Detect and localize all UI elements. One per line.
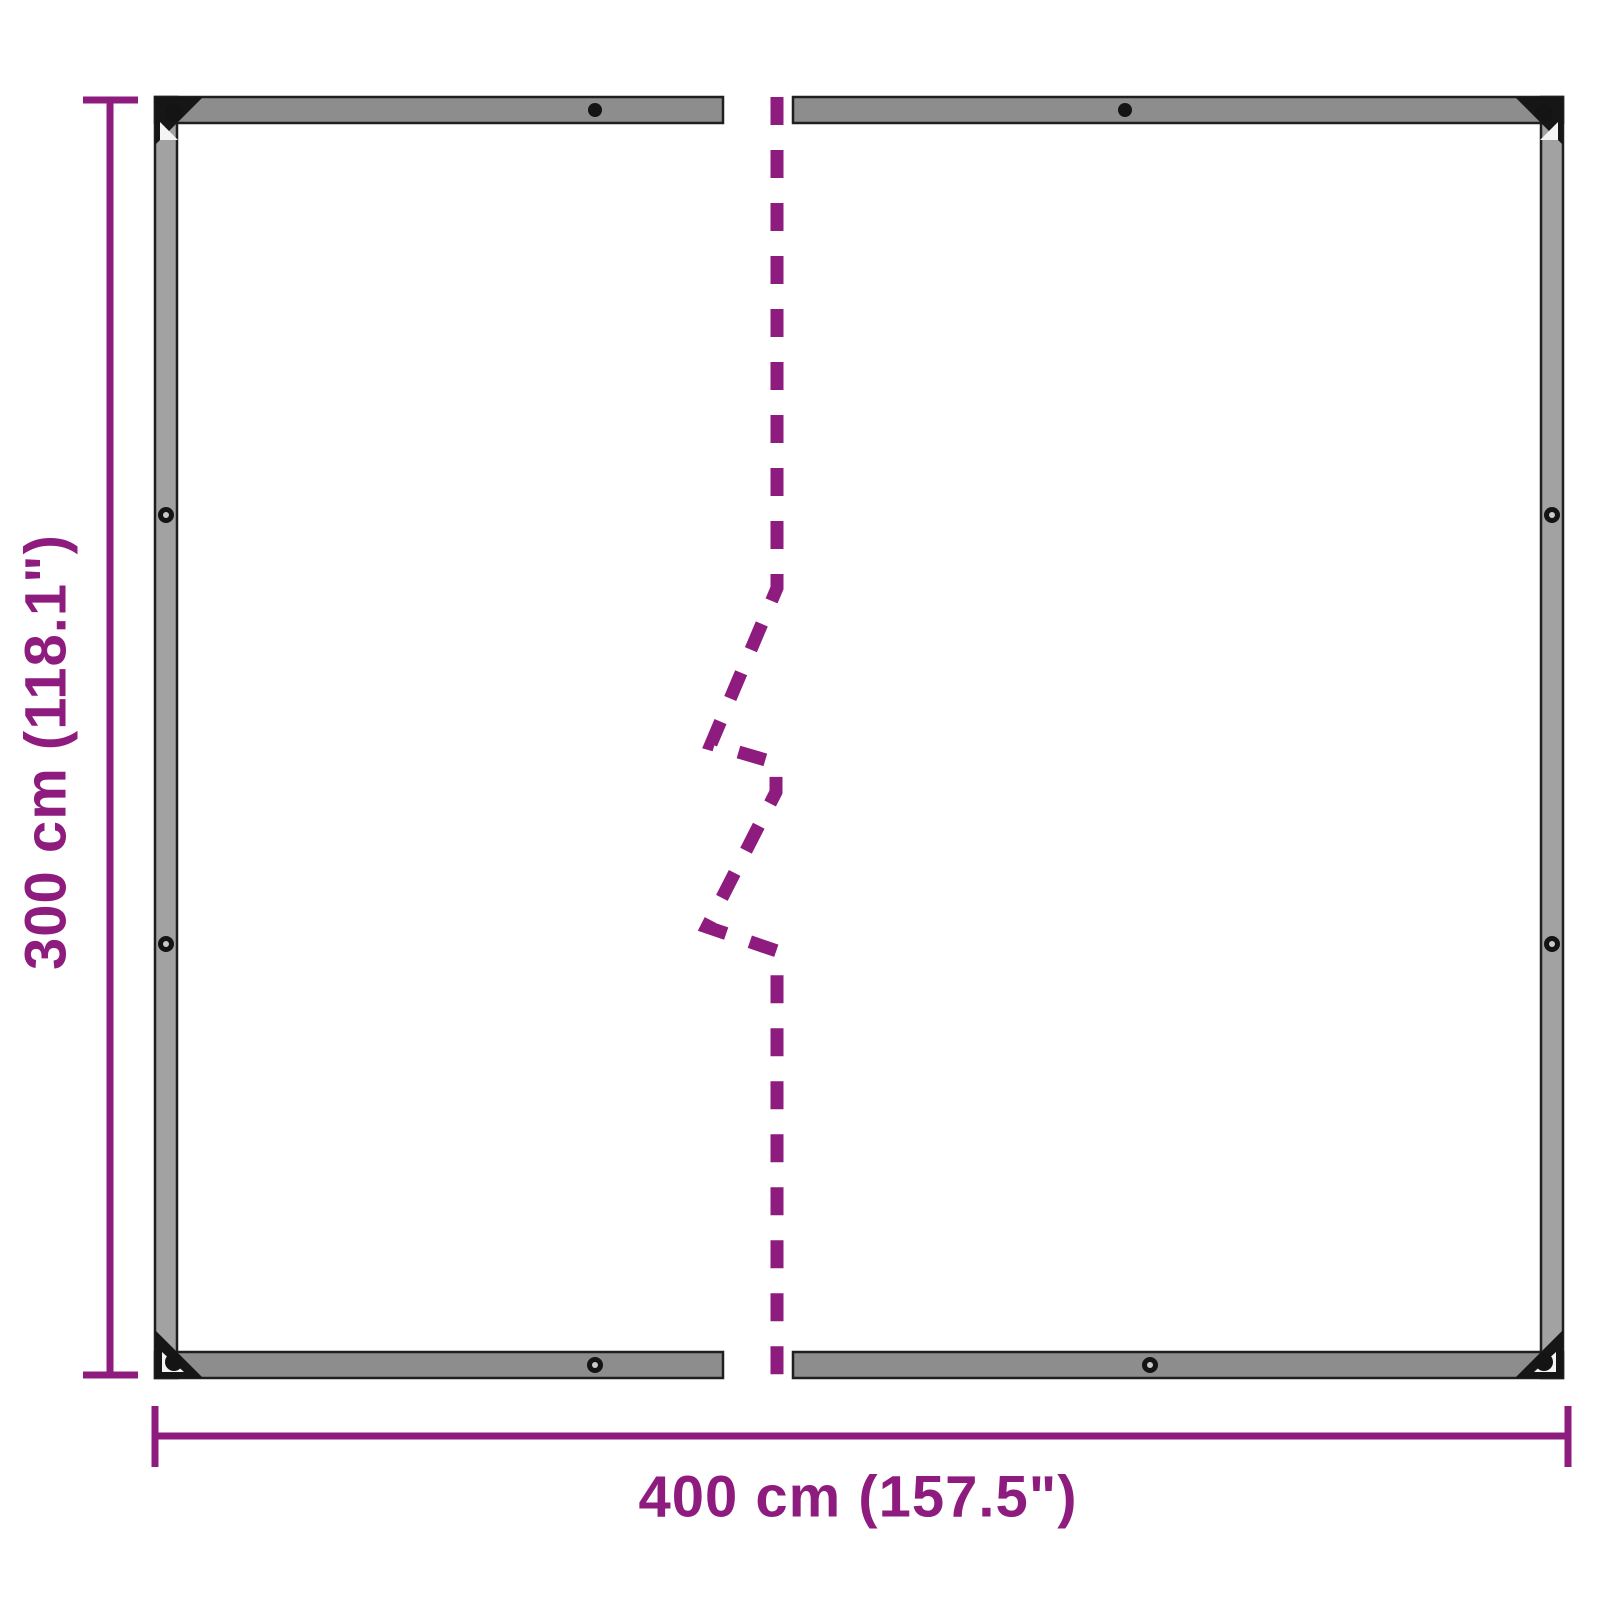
width-dimension-line [155,1406,1568,1467]
width-dimension-label: 400 cm (157.5") [638,1464,1077,1531]
height-dimension-line [83,100,138,1375]
hem-texture [155,97,1563,1378]
tarp-right-panel [793,97,1563,1378]
break-line [707,97,777,1376]
height-dimension-label: 300 cm (118.1") [13,534,80,970]
tarp-illustration [0,0,1600,1600]
product-dimension-diagram: 300 cm (118.1") 400 cm (157.5") [0,0,1600,1600]
tarp-left-panel [155,97,723,1378]
